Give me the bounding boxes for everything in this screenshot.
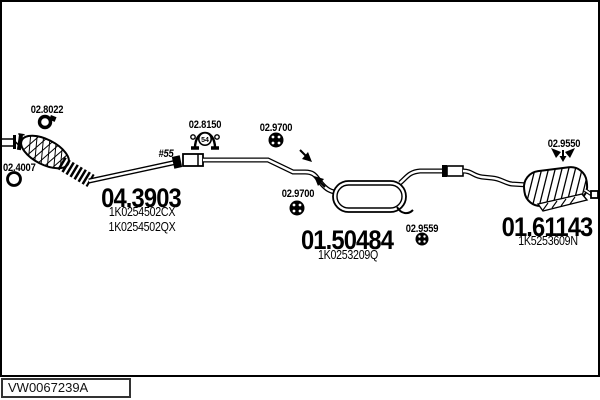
front-pipe bbox=[89, 154, 203, 181]
clamp-icon: 54 bbox=[191, 133, 219, 148]
ref-hanger-mid: 02.9700 bbox=[282, 188, 315, 200]
intermediate-tailpipe bbox=[400, 165, 528, 185]
tailpipe-tip bbox=[585, 190, 598, 198]
catalog-code-box: VW0067239A bbox=[1, 378, 131, 398]
inlet-flange bbox=[2, 134, 23, 150]
rubber-hanger-icon-front bbox=[269, 133, 284, 148]
pipe-diameter-note: #55 bbox=[158, 148, 173, 160]
clamp-badge: 54 bbox=[201, 137, 209, 144]
flex-pipe bbox=[61, 163, 91, 181]
joint-arrows bbox=[300, 150, 325, 187]
ref-front-gasket: 02.8022 bbox=[31, 104, 64, 116]
tailpipe-sleeve bbox=[447, 166, 463, 176]
gasket-icon bbox=[40, 115, 57, 127]
oem-ref-rear-muffler: 1K5253609N bbox=[518, 234, 577, 248]
ref-front-ring: 02.4007 bbox=[3, 162, 36, 174]
ref-pipe-clamp: 02.8150 bbox=[189, 119, 222, 131]
ref-rear-bracket: 02.9550 bbox=[548, 138, 581, 150]
ring-gasket-icon bbox=[8, 173, 21, 186]
centre-pipe bbox=[203, 160, 340, 193]
connector-sleeve bbox=[183, 154, 203, 166]
ref-hanger-front: 02.9700 bbox=[260, 122, 293, 134]
centre-muffler bbox=[333, 181, 413, 213]
parts-diagram-page: 54 02 bbox=[0, 0, 600, 400]
rubber-hanger-icon-mid bbox=[290, 201, 305, 216]
oem-ref-front-pipe-2: 1K0254502QX bbox=[109, 220, 176, 234]
diagram-frame: 54 02 bbox=[0, 0, 600, 377]
bracket-icon bbox=[551, 148, 575, 162]
catalog-code: VW0067239A bbox=[8, 380, 88, 395]
ref-hanger-rear: 02.9559 bbox=[406, 223, 439, 235]
oem-ref-front-pipe-1: 1K0254502CX bbox=[109, 205, 175, 219]
oem-ref-centre-muffler: 1K0253209Q bbox=[318, 248, 378, 262]
